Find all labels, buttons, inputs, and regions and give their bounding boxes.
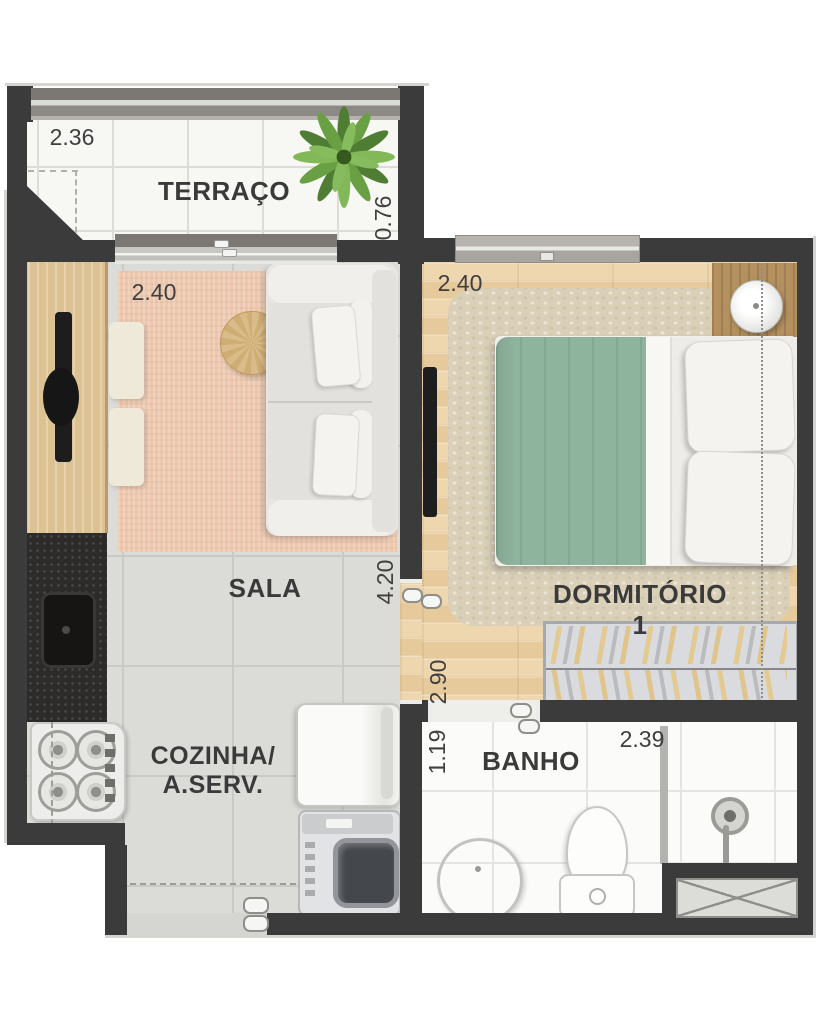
terrace-width-dim: 2.36 (40, 124, 104, 151)
stove-burner (38, 772, 78, 812)
washer-button (326, 819, 352, 828)
sofa-backrest (372, 270, 396, 532)
bathroom-door-handle (510, 703, 532, 718)
stove-burner (38, 730, 78, 770)
entry-door-handle (243, 915, 269, 932)
sofa-pillow (311, 304, 362, 388)
bathroom-door-handle (518, 719, 540, 734)
cozinha-label: COZINHA/ A.SERV. (138, 742, 288, 800)
palm-plant (291, 104, 397, 210)
fridge-door-edge (381, 707, 393, 799)
pouf-cushion (109, 408, 144, 486)
left-wall (7, 193, 27, 845)
kitchen-faucet (62, 626, 70, 634)
terrace-post-left (7, 86, 33, 122)
washer-door (333, 838, 399, 908)
tv-bedroom (423, 367, 437, 517)
bed-pillow (684, 338, 796, 454)
bed-sheet-fold (646, 337, 672, 565)
bed-blanket (496, 337, 646, 565)
cozinha-label-line1: COZINHA/ (151, 742, 276, 770)
outer-outline-top (5, 83, 429, 86)
bathroom-label: BANHO (481, 746, 581, 777)
entry-door-handle (243, 897, 269, 914)
washer-grill (305, 842, 315, 900)
pouf-cushion (109, 322, 144, 399)
bedroom-door-handle (421, 594, 442, 609)
bedroom-door-handle (402, 588, 423, 603)
bedroom-top-wall-right (640, 238, 797, 262)
bedroom-width-dim: 2.40 (428, 270, 492, 297)
kitchen-notch-wall-h (7, 823, 125, 845)
terrace-dashed-line-h (28, 170, 78, 172)
toilet-flush-button (589, 888, 606, 905)
bedroom-window-latch (540, 252, 554, 261)
sala-label: SALA (223, 573, 307, 604)
bed-pillow (684, 450, 796, 566)
bathroom-top-wall-right (540, 700, 797, 722)
cozinha-label-line2: A.SERV. (163, 771, 264, 799)
floor-drain (676, 878, 798, 918)
bedroom-dashed-line (761, 263, 763, 710)
terrace-left-wall (7, 120, 27, 196)
terrace-label: TERRAÇO (158, 176, 288, 207)
sofa-pillow (312, 413, 360, 497)
sala-top-wall-left (27, 240, 115, 262)
bathroom-width-dim: 2.39 (612, 726, 672, 753)
bedroom-label: DORMITÓRIO 1 (543, 579, 737, 641)
sala-width-dim: 2.40 (122, 279, 186, 306)
sala-length-dim: 4.20 (372, 552, 396, 612)
door-jamb-cap (400, 700, 422, 704)
terrace-right-wall (398, 86, 424, 264)
kitchen-notch-wall-v (105, 845, 127, 935)
bedroom-top-wall-left (424, 238, 455, 262)
lamp-finial (753, 303, 759, 309)
exterior-mask (0, 843, 105, 943)
stove-grill (105, 734, 115, 806)
right-wall (797, 238, 813, 935)
bathroom-sink-drain (475, 866, 481, 872)
outer-outline-right (813, 236, 816, 937)
floor-plan: 2.36 TERRAÇO 0.76 2.40 SALA 4.20 2.40 DO… (0, 0, 819, 1024)
divider-wall-lower (400, 700, 422, 935)
divider-wall-upper (400, 262, 422, 583)
outer-outline-bottom (105, 935, 816, 938)
door-jamb-cap (536, 700, 540, 722)
bathroom-depth-dim: 1.19 (424, 721, 448, 783)
tv-sala-base (43, 368, 79, 426)
bathroom-sink (437, 838, 523, 924)
shower-arm (723, 825, 729, 865)
shower-head (711, 797, 749, 835)
terrace-dashed-line-v (75, 170, 77, 242)
door-jamb-cap (400, 579, 422, 583)
sliding-door-handle (214, 240, 229, 248)
bedroom-length-dim: 2.90 (425, 652, 449, 712)
sliding-door-handle (222, 249, 237, 257)
